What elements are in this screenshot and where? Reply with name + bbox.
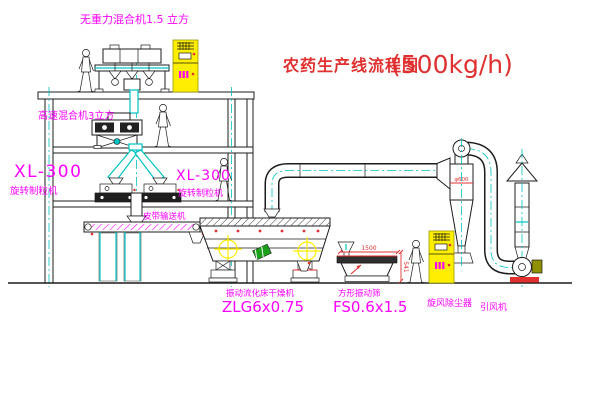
title-capacity: (500kg/h) — [391, 50, 513, 79]
label-granulator-right-model: XL-300 — [176, 168, 231, 184]
gravity-free-mixer — [95, 45, 169, 92]
label-sieve-model: FS0.6x1.5 — [333, 298, 407, 316]
drawing-title: 农药生产线流程图 (500kg/h) — [282, 50, 513, 79]
control-cabinet-ground — [429, 231, 454, 283]
control-cabinet-top — [173, 40, 198, 92]
rotary-granulator-right — [139, 178, 181, 202]
label-granulator-right-name: 旋转制粒机 — [178, 187, 223, 199]
label-belt-conveyor: 皮带输送机 — [143, 211, 186, 222]
worker-figure-1 — [77, 49, 95, 92]
induced-draft-fan — [510, 258, 542, 283]
dim-541: 541 — [402, 261, 409, 273]
dryer-exhaust-duct — [264, 164, 444, 218]
dim-1500: 1500 — [361, 245, 376, 252]
fluid-bed-dryer — [200, 218, 330, 282]
process-flow-diagram: 1500 541 φ600 — [0, 0, 600, 403]
mixer-down-pipe — [130, 90, 138, 113]
label-dryer-model: ZLG6x0.75 — [222, 298, 304, 316]
cyclone-inlet-transition — [437, 158, 450, 189]
belt-conveyor — [84, 222, 205, 281]
fan-base — [510, 277, 539, 283]
label-high-speed-mixer: 高速混合机3立方 — [38, 109, 114, 122]
fan-motor — [532, 260, 542, 273]
cad-drawing-canvas: 1500 541 φ600 — [0, 0, 600, 403]
label-cyclone: 旋风除尘器 — [427, 297, 472, 309]
duct-inlet-funnel — [264, 209, 280, 217]
label-granulator-left-model: XL-300 — [14, 162, 82, 182]
worker-figure-2 — [154, 104, 172, 147]
label-gravity-mixer: 无重力混合机1.5 立方 — [80, 12, 189, 26]
label-granulator-left-name: 旋转制粒机 — [10, 185, 58, 197]
label-fan: 引风机 — [480, 301, 507, 313]
